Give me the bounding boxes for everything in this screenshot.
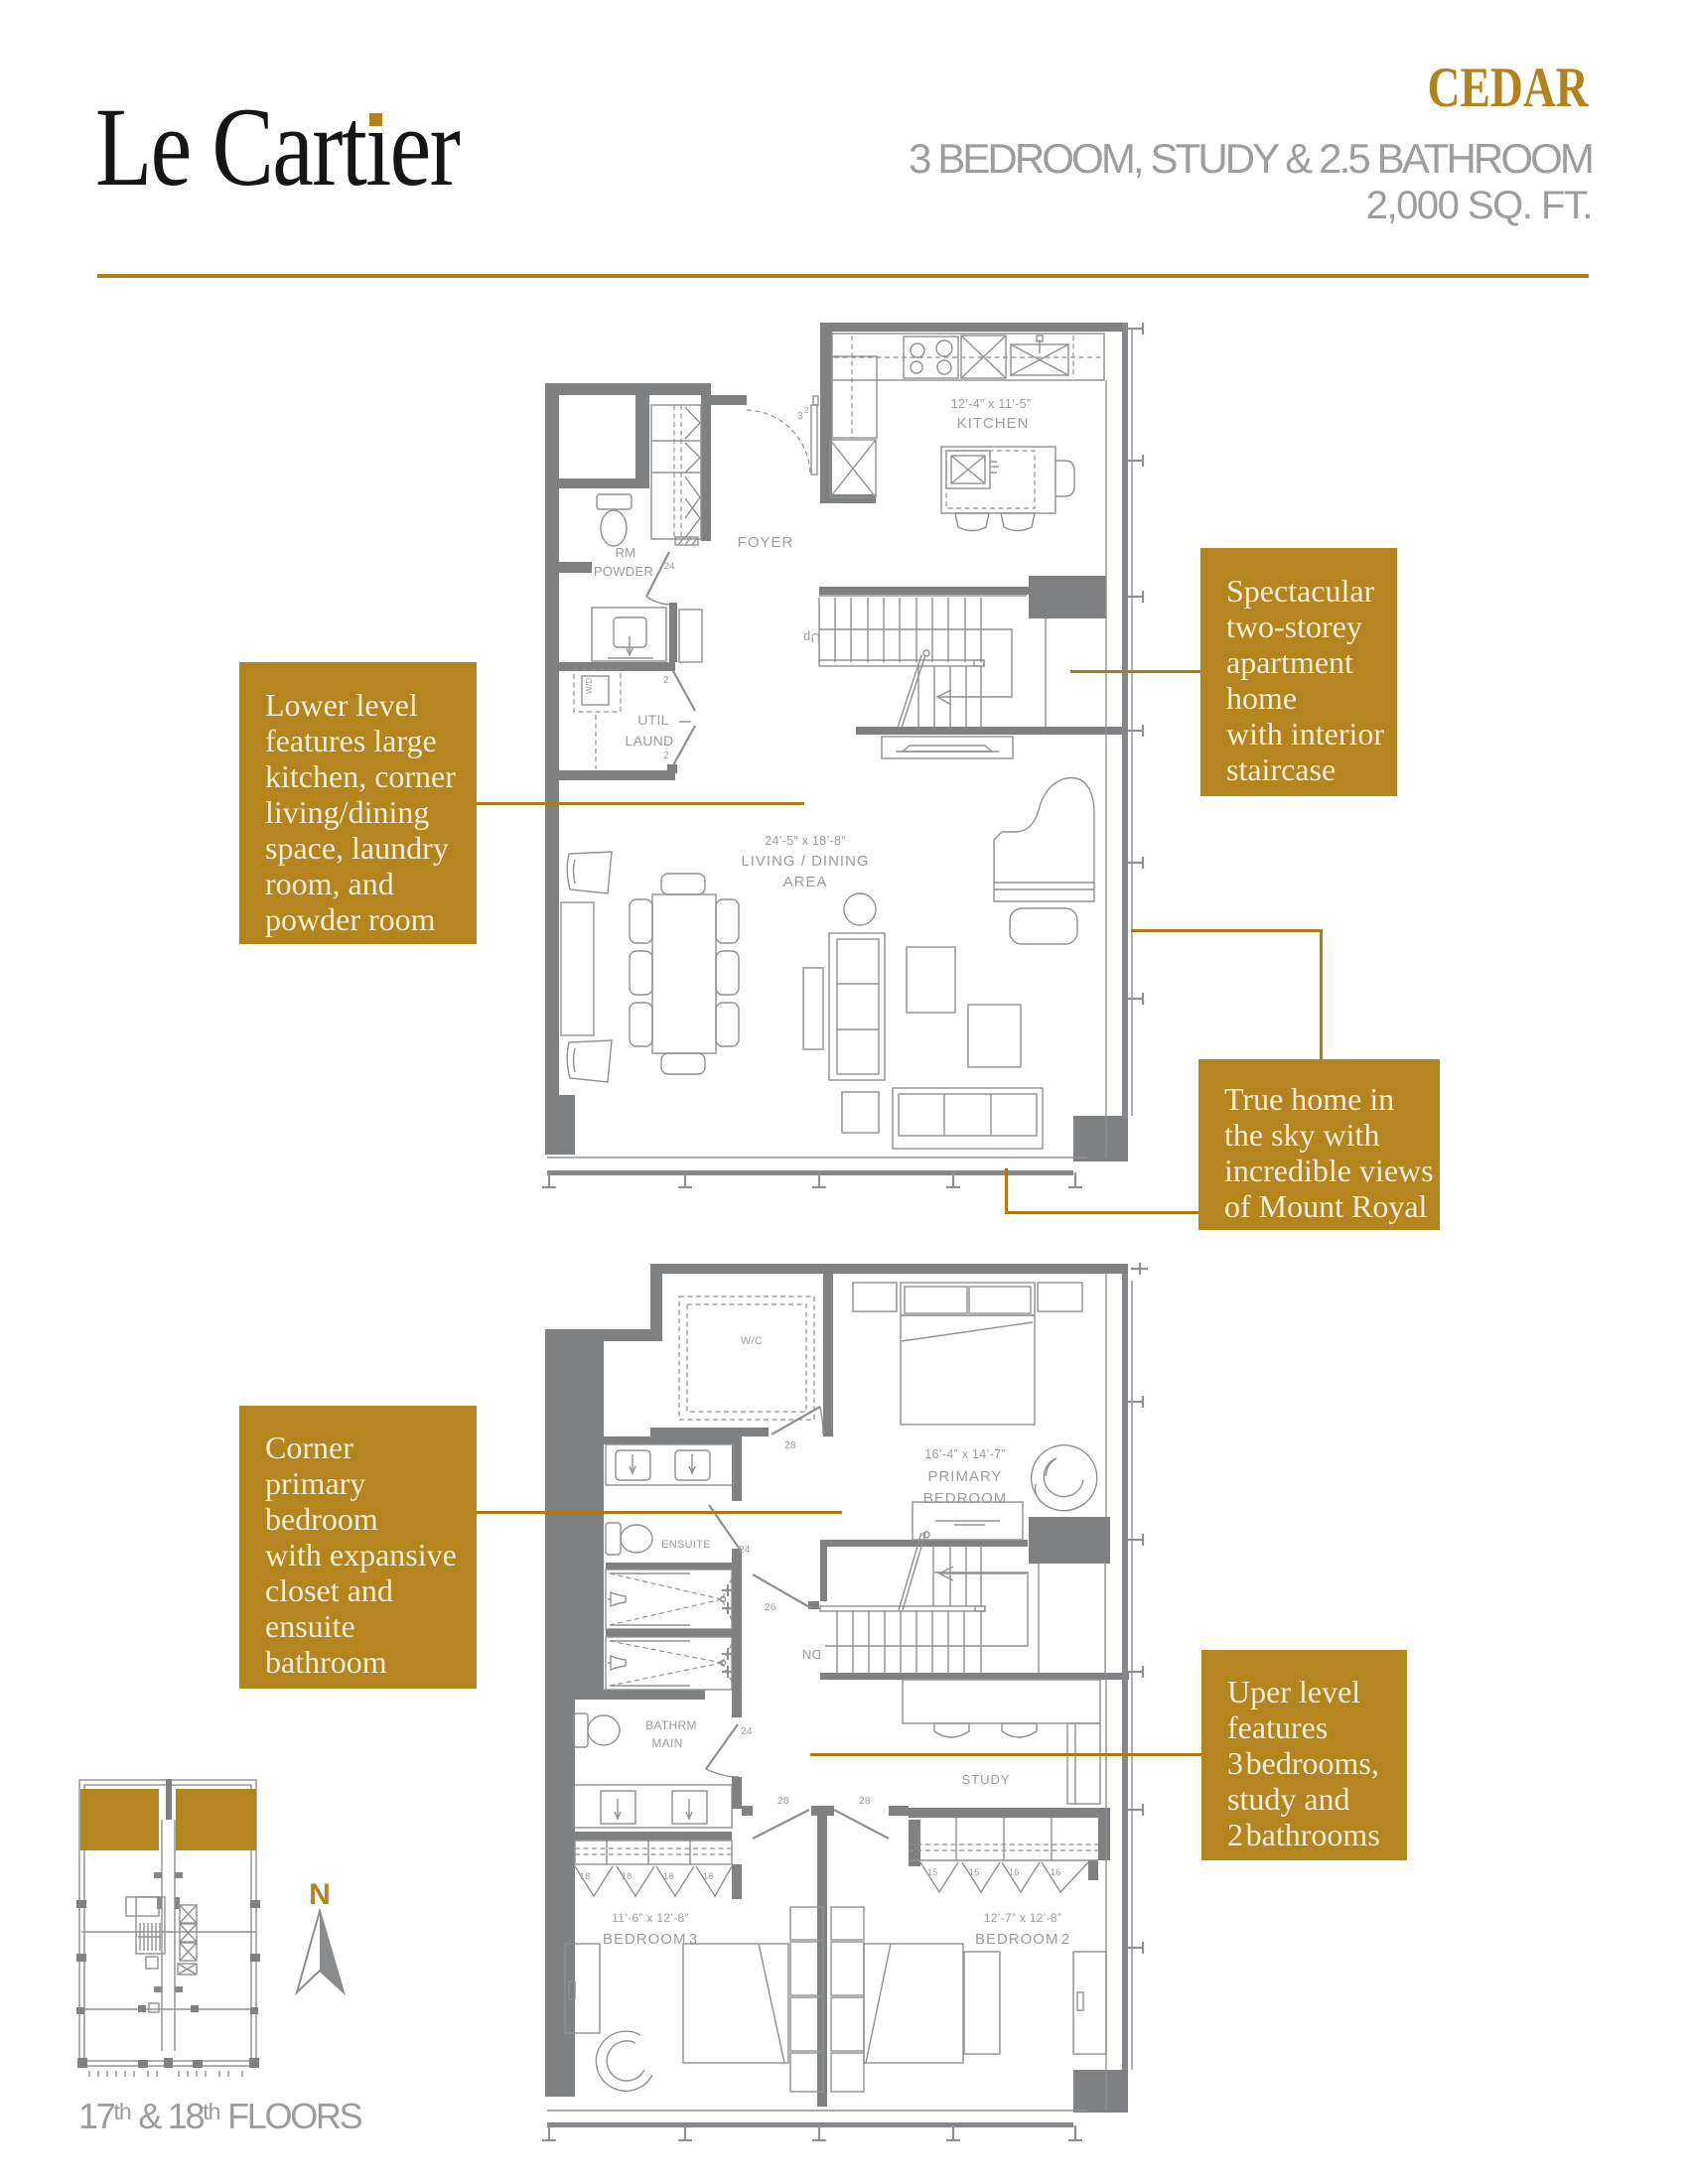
svg-text:Up: Up	[803, 630, 820, 645]
svg-text:POWDER: POWDER	[594, 564, 653, 579]
svg-text:18: 18	[663, 1871, 674, 1881]
svg-text:18: 18	[580, 1871, 591, 1881]
svg-text:16: 16	[1051, 1867, 1061, 1877]
svg-text:2: 2	[663, 675, 669, 686]
svg-text:W/D: W/D	[585, 678, 594, 694]
svg-text:KITCHEN: KITCHEN	[957, 415, 1030, 432]
svg-text:DN: DN	[802, 1647, 821, 1662]
svg-text:2: 2	[804, 406, 809, 415]
svg-text:18: 18	[703, 1871, 714, 1881]
svg-text:ENSUITE: ENSUITE	[661, 1539, 711, 1551]
svg-text:2: 2	[663, 751, 669, 761]
svg-text:24: 24	[664, 561, 675, 571]
svg-text:PRIMARY: PRIMARY	[927, 1468, 1002, 1485]
svg-text:UTIL: UTIL	[637, 712, 669, 728]
svg-text:24: 24	[739, 1545, 751, 1556]
svg-text:28: 28	[777, 1796, 789, 1807]
svg-text:LAUND: LAUND	[626, 733, 674, 749]
svg-text:15: 15	[927, 1867, 938, 1877]
svg-text:28: 28	[859, 1796, 871, 1807]
svg-text:12’-7” x 12’-8”: 12’-7” x 12’-8”	[984, 1911, 1062, 1925]
svg-text:STUDY: STUDY	[961, 1772, 1010, 1787]
svg-text:28: 28	[784, 1440, 796, 1451]
svg-text:AREA: AREA	[783, 874, 828, 890]
svg-text:BEDROOM: BEDROOM	[923, 1490, 1008, 1507]
svg-text:RM: RM	[616, 545, 636, 560]
svg-text:3: 3	[797, 411, 803, 422]
svg-text:18: 18	[622, 1871, 633, 1881]
svg-text:12’-4” x 11’-5”: 12’-4” x 11’-5”	[951, 397, 1032, 411]
svg-text:LIVING / DINING: LIVING / DINING	[741, 853, 869, 870]
svg-text:N: N	[309, 1878, 331, 1911]
svg-text:W/C: W/C	[741, 1335, 763, 1347]
svg-text:11’-6” x 12’-8”: 11’-6” x 12’-8”	[612, 1911, 689, 1925]
svg-text:FOYER: FOYER	[738, 534, 794, 551]
svg-text:16’-4” x 14’-7”: 16’-4” x 14’-7”	[924, 1447, 1006, 1461]
svg-text:MAIN: MAIN	[651, 1736, 682, 1750]
svg-text:26: 26	[765, 1602, 776, 1613]
svg-text:24’-5” x 18’-8”: 24’-5” x 18’-8”	[765, 834, 846, 848]
svg-text:16: 16	[1009, 1867, 1020, 1877]
svg-text:BEDROOM 2: BEDROOM 2	[975, 1931, 1070, 1948]
svg-text:24: 24	[741, 1726, 753, 1737]
svg-text:BATHRM: BATHRM	[645, 1718, 697, 1732]
svg-text:15: 15	[969, 1867, 980, 1877]
